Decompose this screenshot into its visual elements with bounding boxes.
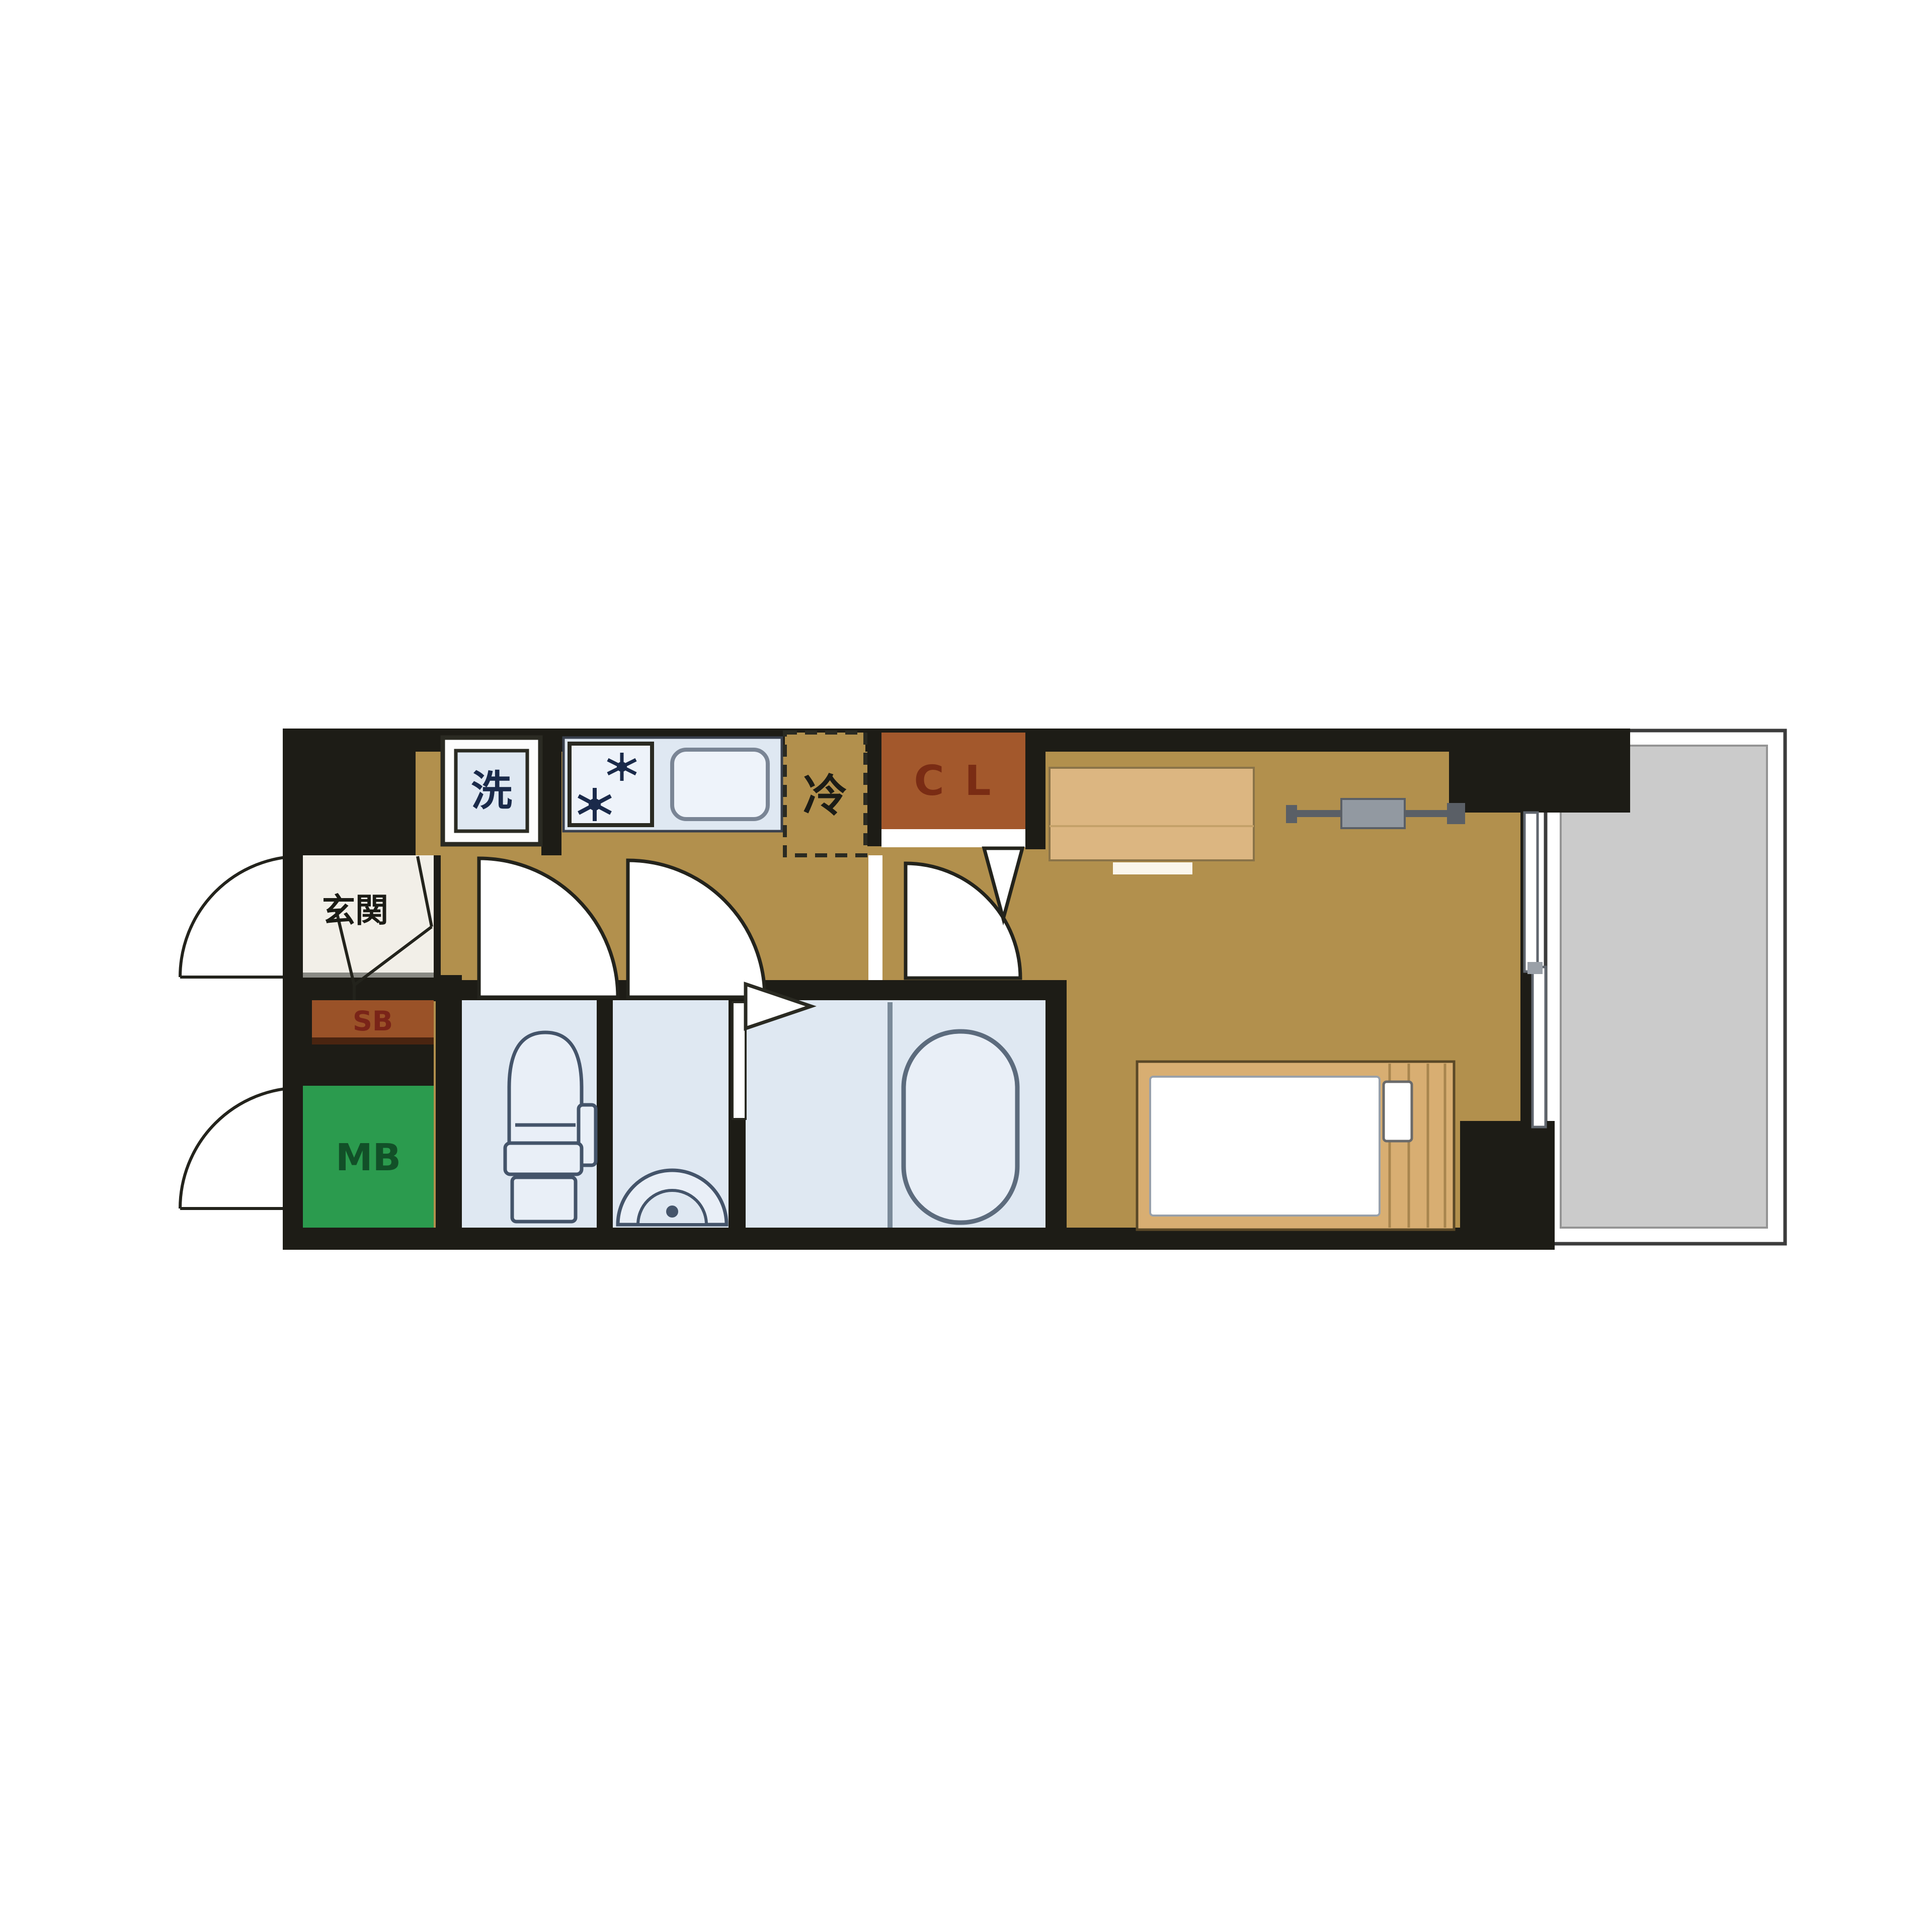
bathroom <box>733 984 1045 1228</box>
counter-shelf-highlight <box>1113 862 1192 874</box>
toilet-tank-bottom <box>512 1177 576 1222</box>
stub-washer-kitchen <box>541 729 561 855</box>
wall-window-glass <box>1341 799 1405 828</box>
wall-bath-right <box>1045 980 1067 1228</box>
stub-closet-left <box>867 729 881 846</box>
bed-pillow <box>1384 1082 1412 1141</box>
toilet-room <box>462 1000 597 1228</box>
counter-shelf-top <box>1050 768 1254 860</box>
closet-side-strip <box>868 855 882 980</box>
meter-box-label: MB <box>336 1136 401 1179</box>
balcony-floor <box>1561 746 1767 1228</box>
refrigerator-label: 冷 <box>803 770 847 822</box>
washroom <box>613 1000 729 1228</box>
wall-window-right-cap <box>1447 803 1465 824</box>
kitchen-unit <box>563 738 782 831</box>
block-top-left <box>283 729 416 856</box>
bed <box>1137 1062 1454 1230</box>
shoe-box-shadow <box>312 1037 434 1044</box>
bathtub <box>904 1031 1017 1223</box>
stub-closet-right <box>1025 729 1045 849</box>
block-bottom-right <box>1460 1121 1555 1250</box>
toilet-tank-top <box>505 1143 582 1174</box>
bed-mattress <box>1150 1077 1380 1216</box>
bathroom-divider <box>888 1002 893 1228</box>
washing-machine-label: 洗 <box>471 767 512 815</box>
balcony-door-panel-1 <box>1524 813 1538 972</box>
wall-bottom <box>283 1228 1555 1250</box>
entrance-hall-line <box>434 855 441 1000</box>
kitchen-sink <box>672 750 768 819</box>
bath-door-pole <box>733 1002 746 1119</box>
counter-shelf <box>1050 768 1254 874</box>
block-top-right <box>1449 729 1630 813</box>
entrance-label: 玄関 <box>322 891 388 930</box>
closet-door-strip <box>881 829 1025 847</box>
wall-toilet-washroom <box>597 1000 613 1228</box>
wall-toilet-left <box>436 1000 462 1228</box>
washing-machine: 洗 <box>443 738 540 844</box>
balcony-door-panel-2 <box>1533 967 1546 1127</box>
washbasin-drain <box>666 1205 678 1218</box>
balcony-door-joint <box>1527 962 1543 974</box>
closet-label: C L <box>914 757 994 805</box>
floor-plan-canvas: 玄関 SB MB 洗 冷 C L <box>0 0 1932 1932</box>
floor-plan-drawing: 玄関 SB MB 洗 冷 C L <box>0 0 1932 1932</box>
shoe-box-label: SB <box>353 1005 393 1037</box>
